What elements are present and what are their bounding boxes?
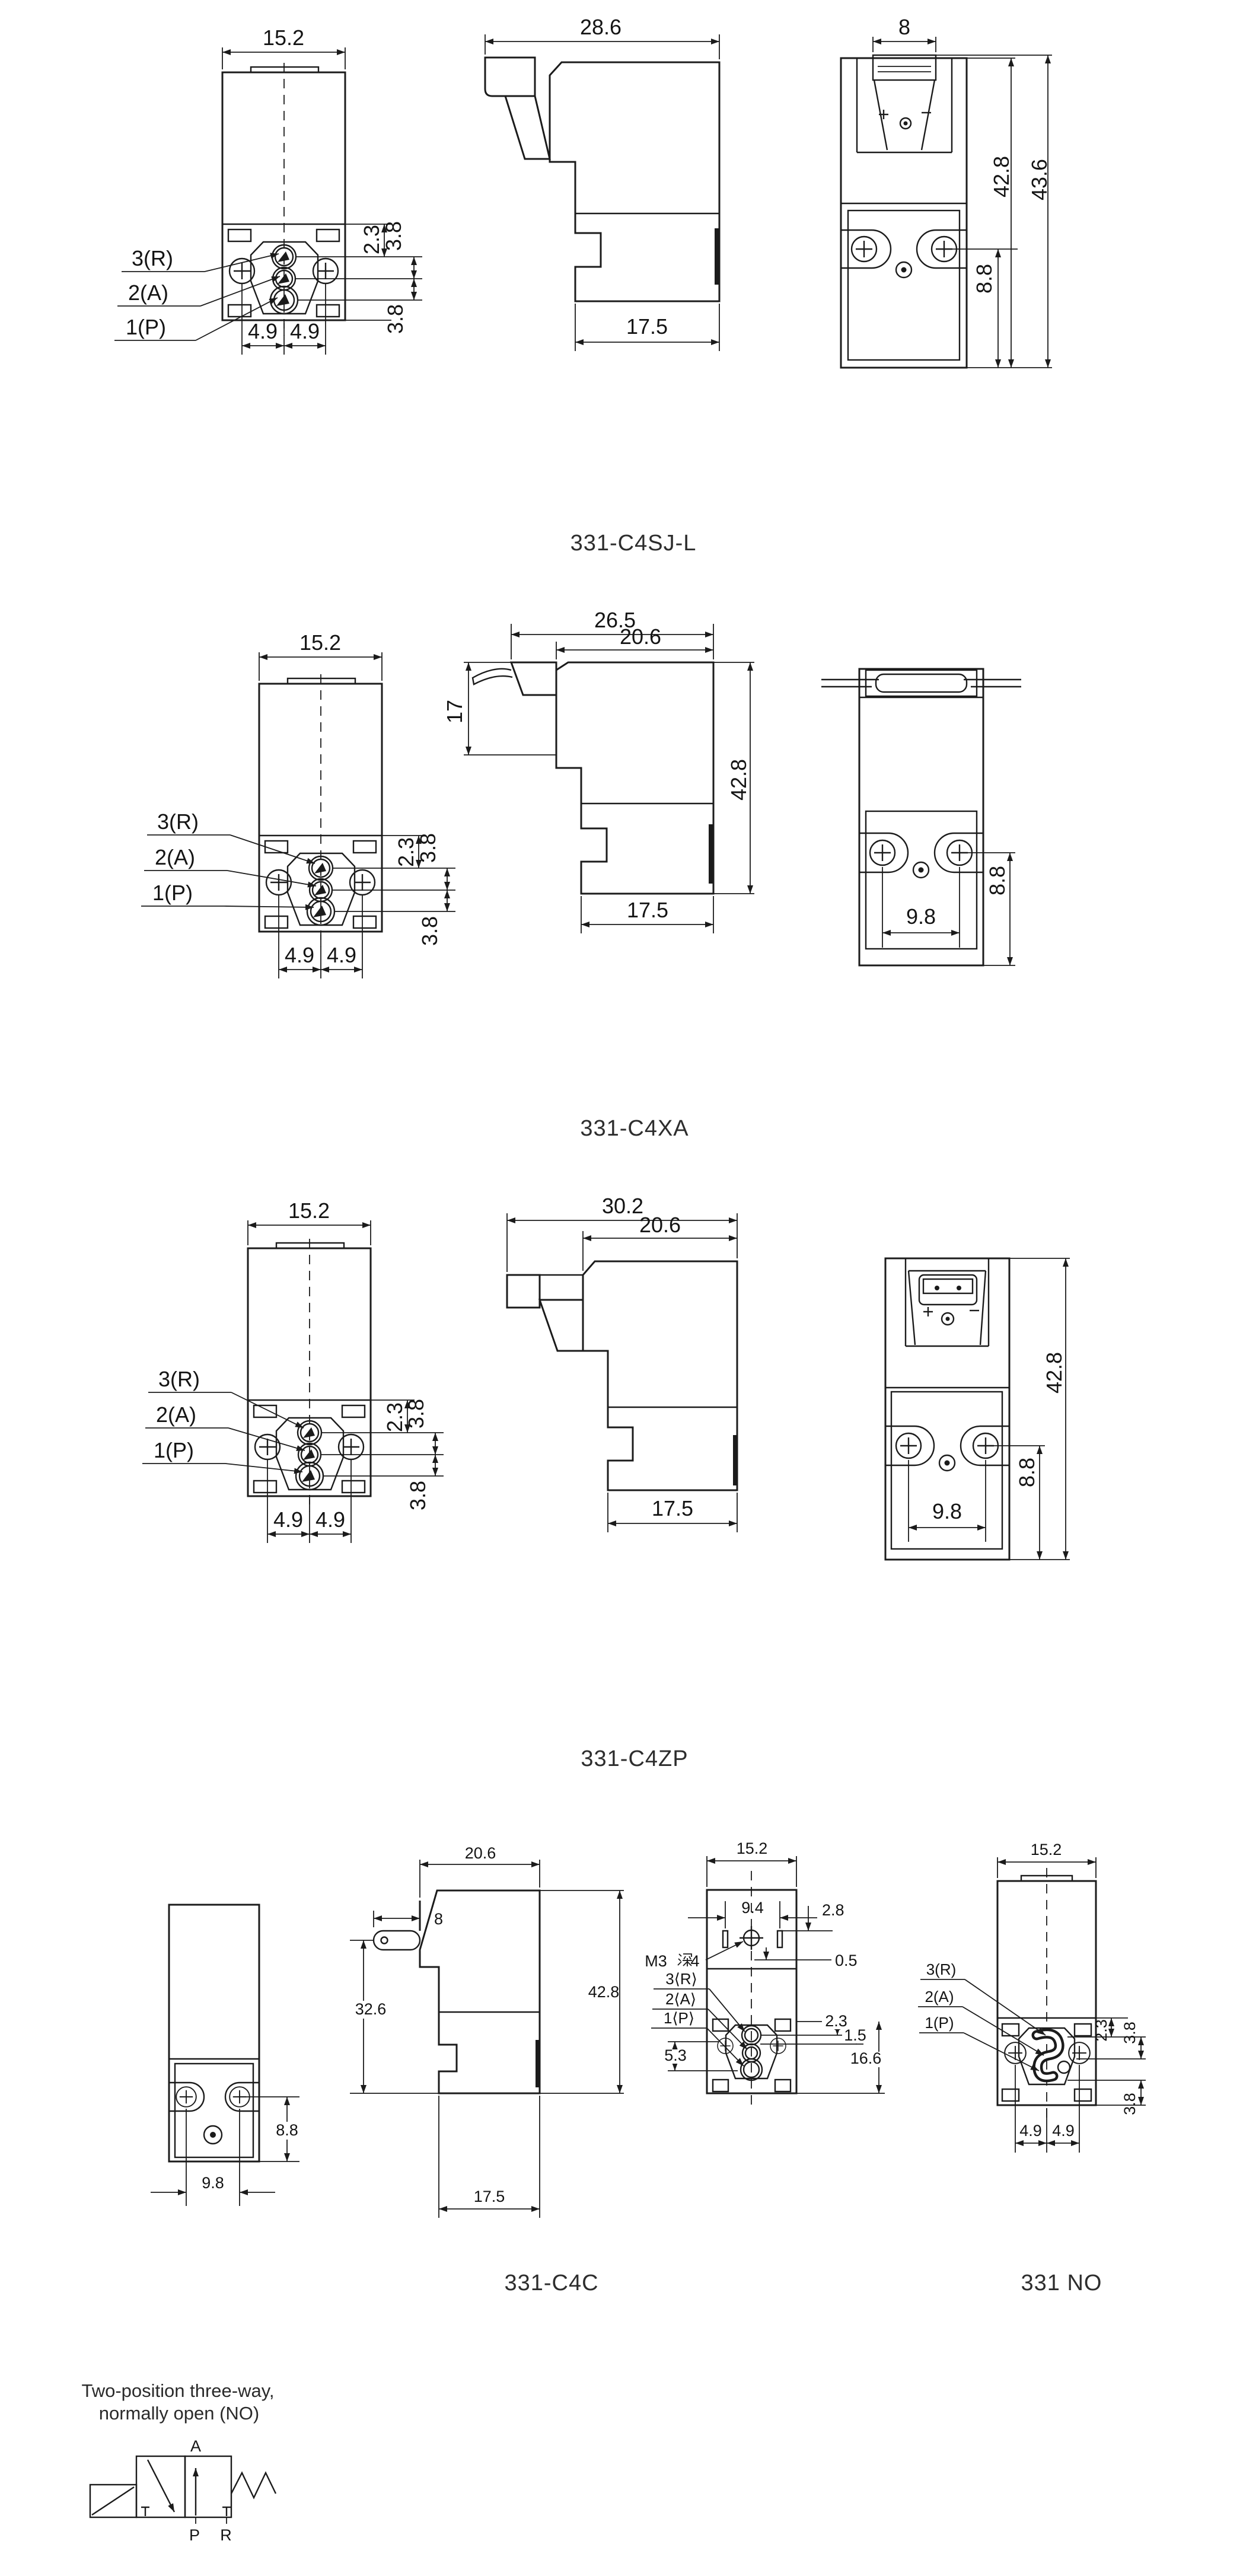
dim-text-2-3: 2.3 — [1092, 2019, 1110, 2042]
dim-depth: 30.2 — [507, 1194, 737, 1272]
port-label-text-2a: 2(A) — [925, 1988, 954, 2006]
dim-text-42-8: 42.8 — [588, 1983, 620, 2001]
dim-text-4-9-left: 4.9 — [248, 319, 278, 343]
dim-text-8: 8 — [434, 1910, 443, 1928]
dim-port-offsets: 2.3 3.8 3.8 — [332, 833, 455, 946]
view-front-331-no: 15.2 3(R) 2(A) 1(P) 2.3 3.8 3.8 — [918, 1841, 1146, 2153]
dim-text-3-8-lower: 3.8 — [417, 916, 442, 946]
dim-text-8-8: 8.8 — [972, 264, 996, 294]
view-top-331-no: 15.2 9.4 2.8 0.5 M3 — [645, 1839, 886, 2111]
dim-text-43-6: 43.6 — [1027, 159, 1051, 200]
dim-text-5-3: 5.3 — [664, 2046, 687, 2064]
dim-text-20-6: 20.6 — [620, 624, 661, 649]
dim-text-9-8: 9.8 — [906, 904, 936, 929]
dim-text-32-6: 32.6 — [355, 2000, 387, 2018]
model-label-331-c4zp: 331-C4ZP — [581, 1746, 688, 1771]
thread-note-suffix: 4 — [690, 1952, 699, 1970]
dim-text-width: 15.2 — [288, 1198, 330, 1223]
view-side-331-c4xa: 26.5 20.6 17 42.8 17.5 — [442, 608, 754, 933]
view-side-331-c4sjl: 28.6 17.5 — [485, 15, 719, 351]
port-label-text-1p: 1(P) — [925, 2014, 954, 2032]
model-label-331-c4c: 331-C4C — [504, 2271, 598, 2296]
model-label-331-c4xa: 331-C4XA — [580, 1116, 689, 1141]
dim-text-4-9-left: 4.9 — [1019, 2122, 1042, 2140]
dim-connector-width: 8 — [873, 15, 936, 52]
dim-text-3-8-upper: 3.8 — [416, 833, 440, 863]
dim-text-3-8-upper: 3.8 — [404, 1399, 428, 1429]
dim-screw-height: 8.8 — [240, 2097, 300, 2161]
model-label-331-no: 331 NO — [1021, 2271, 1102, 2296]
view-rear-331-c4zp: 42.8 8.8 9.8 — [885, 1258, 1070, 1560]
dim-base-depth: 17.5 — [608, 1493, 737, 1532]
dim-text-17-5: 17.5 — [627, 898, 668, 922]
dim-text-4-9-left: 4.9 — [285, 943, 314, 967]
dim-width: 15.2 — [248, 1198, 371, 1245]
dim-width: 15.2 — [259, 630, 382, 681]
port-label-text-1p: 1(P) — [152, 881, 193, 905]
symbol-port-r: R — [220, 2526, 232, 2544]
dim-text-17-5: 17.5 — [626, 314, 668, 339]
dim-depth: 26.5 — [511, 608, 713, 659]
dim-text-1-5: 1.5 — [844, 2026, 866, 2044]
dim-text-3-8-upper: 3.8 — [381, 221, 406, 251]
dim-text-42-8: 42.8 — [989, 156, 1013, 197]
dim-height-total: 43.6 — [936, 55, 1052, 368]
dim-section-height: 16.6 — [796, 2022, 886, 2093]
dim-depth: 28.6 — [485, 15, 719, 59]
symbol-caption-line2: normally open (NO) — [99, 2403, 259, 2424]
view-side-331-c4zp: 30.2 20.6 17.5 — [507, 1194, 738, 1532]
dim-lead-height: 32.6 — [349, 1940, 439, 2093]
dim-screw-pitch: 9.8 — [909, 1460, 986, 1542]
spring-symbol — [231, 2473, 276, 2498]
port-label-text-1p: 1⟨P⟩ — [664, 2009, 694, 2027]
pneumatic-symbol: Two-position three-way, normally open (N… — [81, 2380, 276, 2544]
dim-slot-offset-small: 0.5 — [754, 1947, 858, 1969]
port-label-text-1p: 1(P) — [154, 1438, 194, 1462]
dim-text-width: 15.2 — [263, 25, 304, 50]
port-label-text-3r: 3⟨R⟩ — [665, 1970, 697, 1988]
dim-height-body: 42.8 — [713, 662, 754, 894]
dim-text-width: 15.2 — [299, 630, 341, 655]
symbol-caption-line1: Two-position three-way, — [81, 2380, 274, 2401]
port-label-2a: 2(A) — [117, 276, 280, 306]
port-label-text-2a: 2⟨A⟩ — [665, 1990, 696, 2008]
dim-text-2-3: 2.3 — [359, 225, 384, 254]
dim-text-4-9-right: 4.9 — [1052, 2122, 1075, 2140]
dim-height-body: 42.8 — [967, 58, 1052, 368]
valve-position-open — [185, 2456, 231, 2524]
dim-text-17-5: 17.5 — [652, 1496, 693, 1520]
symbol-port-a: A — [190, 2437, 201, 2455]
dim-text-8-8: 8.8 — [985, 866, 1009, 895]
dim-text-2-3: 2.3 — [394, 837, 418, 867]
port-label-text-2a: 2(A) — [156, 1402, 196, 1427]
dim-base-depth: 17.5 — [439, 2096, 540, 2218]
thread-note-prefix: M3 — [645, 1952, 667, 1970]
dim-text-3-8-upper: 3.8 — [1121, 2022, 1139, 2044]
dim-height-body: 42.8 — [540, 1890, 624, 2093]
dim-text-2-3: 2.3 — [383, 1402, 407, 1432]
dim-text-4-9-right: 4.9 — [315, 1507, 345, 1532]
dim-text-42-8: 42.8 — [1042, 1352, 1066, 1394]
dim-screw-height: 8.8 — [944, 249, 1018, 368]
port-label-text-2a: 2(A) — [155, 845, 195, 869]
dim-text-0-5: 0.5 — [835, 1952, 858, 1969]
cjk-deep-glyph — [678, 1954, 692, 1966]
dim-text-3-8-lower: 3.8 — [1121, 2093, 1139, 2115]
dim-width: 15.2 — [222, 25, 345, 69]
dim-lead-length: 8 — [374, 1910, 443, 1928]
valve-position-closed — [136, 2456, 185, 2517]
view-front-331-c4xa: 15.2 3(R) 2(A) 1(P) 2.3 3.8 3.8 — [141, 630, 455, 978]
model-label-331-c4sjl: 331-C4SJ-L — [570, 531, 697, 556]
dim-text-9-4: 9.4 — [741, 1899, 764, 1917]
valve-dimension-drawing: 15.2 3(R) 2(A) 1(P) 2.3 3.8 3.8 — [0, 0, 1243, 2576]
dim-text-20-6: 20.6 — [639, 1213, 681, 1237]
port-label-text-3r: 3(R) — [926, 1960, 957, 1978]
port-label-text-3r: 3(R) — [157, 809, 199, 834]
dim-text-15-2: 15.2 — [1031, 1841, 1062, 1858]
view-rear-331-c4sjl: 8 42.8 43.6 8.8 — [841, 15, 1052, 368]
dim-text-15-2: 15.2 — [737, 1839, 768, 1857]
port-label-text-2a: 2(A) — [128, 280, 168, 305]
dim-text-9-8: 9.8 — [932, 1499, 962, 1523]
dim-text-8-8: 8.8 — [1015, 1458, 1039, 1487]
dim-port-offsets: 2.3 3.8 3.8 — [321, 1399, 444, 1510]
solenoid-box — [90, 2485, 136, 2517]
dim-text-3-8-lower: 3.8 — [406, 1481, 430, 1510]
dim-text-8-8: 8.8 — [276, 2121, 298, 2139]
dim-text-8: 8 — [898, 15, 910, 39]
dim-text-17: 17 — [442, 700, 467, 723]
port-label-text-3r: 3(R) — [132, 246, 173, 270]
view-front-331-c4zp: 15.2 3(R) 2(A) 1(P) 2.3 3.8 3.8 — [142, 1198, 444, 1543]
port-label-text-1p: 1(P) — [126, 315, 166, 339]
dim-screw-pitch: 9.8 — [882, 867, 960, 948]
dim-text-17-5: 17.5 — [474, 2188, 505, 2205]
view-rear-331-c4xa: 9.8 8.8 — [821, 669, 1021, 965]
dim-slot-offset: 2.8 — [782, 1901, 844, 1931]
technical-drawing-page: 15.2 3(R) 2(A) 1(P) 2.3 3.8 3.8 — [0, 0, 1243, 2576]
dim-text-2-8: 2.8 — [822, 1901, 844, 1919]
view-front-331-c4c: 8.8 9.8 — [151, 1905, 300, 2206]
dim-text-42-8: 42.8 — [726, 759, 751, 801]
dim-text-9-8: 9.8 — [202, 2174, 224, 2192]
dim-base-depth: 17.5 — [575, 304, 719, 351]
dim-text-4-9-left: 4.9 — [273, 1507, 303, 1532]
port-label-text-3r: 3(R) — [158, 1367, 200, 1391]
view-front-331-c4sjl: 15.2 3(R) 2(A) 1(P) 2.3 3.8 3.8 — [114, 25, 422, 355]
dim-text-20-6: 20.6 — [465, 1844, 496, 1862]
view-side-331-c4c: 20.6 8 32.6 42.8 17.5 — [349, 1844, 624, 2218]
dim-text-28-6: 28.6 — [580, 15, 621, 39]
dim-screw-height: 8.8 — [986, 1446, 1045, 1560]
dim-text-4-9-right: 4.9 — [327, 943, 356, 967]
dim-text-4-9-right: 4.9 — [290, 319, 320, 343]
dim-text-16-6: 16.6 — [850, 2049, 882, 2067]
symbol-port-p: P — [189, 2526, 200, 2544]
dim-base-depth: 17.5 — [581, 896, 713, 933]
dim-body-depth: 20.6 — [556, 624, 713, 659]
dim-text-3-8-lower: 3.8 — [383, 304, 407, 334]
dim-text-30-2: 30.2 — [602, 1194, 643, 1218]
